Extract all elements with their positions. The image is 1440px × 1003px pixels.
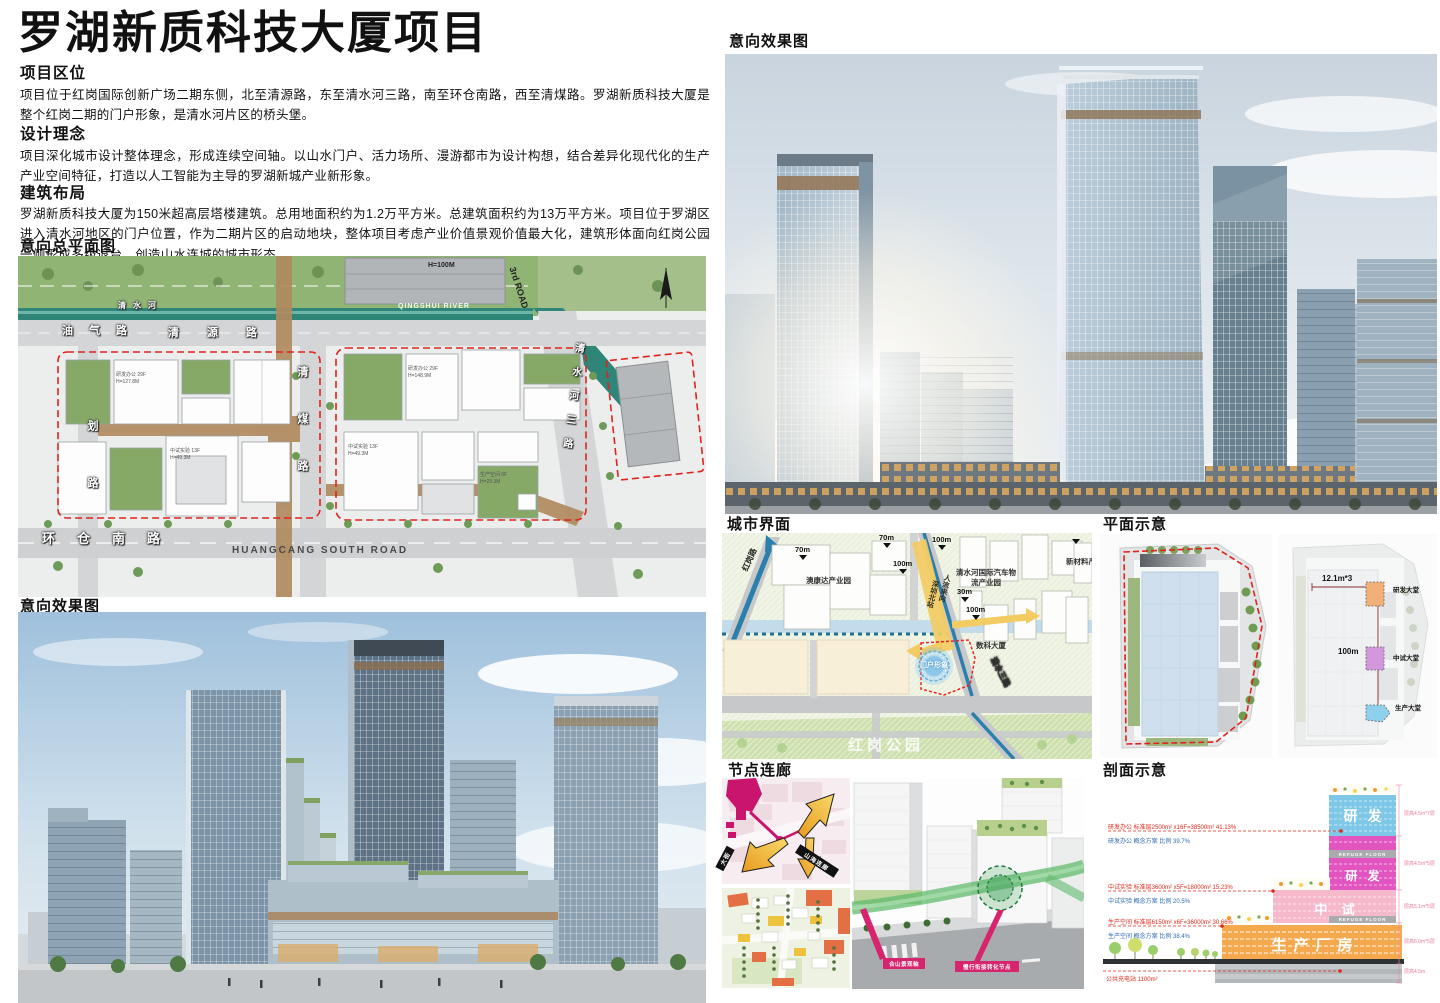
annotation-prod-ratio: 生产空间 概念方案 比例 38.4% [1108,931,1190,940]
floor-height-dim: 层高6.0m*5层 [1404,938,1435,945]
arrow-down-icon [972,615,980,620]
landscape-axis-tag: 合山景观轴 [883,958,925,969]
dim-marker-100m: 100m [966,606,985,620]
lot-label: 中试实验 13F H=49.3M [348,444,392,458]
page-title: 罗湖新质科技大厦项目 [18,10,488,55]
lobby-pilot-label: 中试大堂 [1393,656,1419,663]
plan-dim-width: 12.1m*3 [1322,575,1352,583]
shuke-tower-label: 数科大厦 [976,642,1006,650]
dim-marker-100m: 100m [893,560,912,574]
zone-rd-mid-label: 研发 [1329,867,1396,884]
node-corridor-context-plan [722,888,850,988]
road-qingyuan-label: 清源路 [168,328,285,339]
dim-marker-70m: 70m [879,534,894,548]
zone-production-label: 生产厂房 [1222,934,1402,955]
heading-master-plan: 意向总平面图 [20,239,116,254]
lobby-rd-label: 研发大堂 [1393,588,1419,595]
arrow-down-icon [899,569,907,574]
lot-label: 研发办公 29F H=148.9M [408,366,452,380]
zone-pilot-label: 中试 [1273,899,1396,918]
heading-city-interface: 城市界面 [727,517,791,532]
annotation-pilot-area: 中试实验 标准层3600m² x5F=18000m² 15.23% [1108,882,1233,891]
heading-massing: 建筑布局 [20,186,86,202]
road-guihua-label: 划路 [86,420,97,534]
dim-marker-30m: 30m [957,588,972,602]
dim-marker-70m: 70m [795,546,810,560]
heading-concept: 设计理念 [20,127,86,143]
lot-label: 研发办公 29F H=127.8M [116,372,160,386]
plan-dim-height: 100m [1338,648,1358,656]
arrow-down-icon [1072,538,1080,544]
lot-label: 生产空间 6F H=29.3M [480,472,524,486]
slow-traffic-node-tag: 慢行衔接转化节点 [955,961,1019,972]
arrow-down-icon [961,597,969,602]
building-h100-label: H=100M [428,262,455,269]
annotation-rd-ratio: 研发办公 概念方案 比例 39.7% [1108,836,1190,845]
annotation-rd-area: 研发办公 标准层2500m² x16F=38500m² 41.13% [1108,822,1236,831]
floor-height-dim: 层高4.5m*5层 [1404,860,1435,867]
heading-node-corridor: 节点连廊 [728,763,792,778]
dim-marker-text: 100m [893,559,912,568]
paragraph-location: 项目位于红岗国际创新广场二期东侧，北至清源路，东至清水河三路，南至环仓南路，西至… [20,85,710,126]
annotation-pilot-ratio: 中试实验 概念方案 比例 20.5% [1108,896,1190,905]
road-youqi-label: 油气路 [62,326,143,337]
river-label-en: QINGSHUI RIVER [398,303,470,310]
refuge-floor-label: REFUGE FLOOR [1329,852,1396,857]
heading-section-diagram: 剖面示意 [1103,763,1167,778]
dim-marker-text: 70m [795,545,810,554]
lobby-prod-label: 生产大堂 [1395,706,1421,713]
floor-height-dim: 层高5.1m*5层 [1404,903,1435,910]
dim-marker-text: 100m [966,605,985,614]
heading-location: 项目区位 [20,66,86,82]
arrow-down-icon [883,543,891,548]
dim-marker-text: 70m [879,533,894,542]
refuge-floor-label: REFUGE FLOOR [1329,917,1396,922]
render-right-image [725,54,1437,514]
dim-marker-text: 30m [957,587,972,596]
plan-diagram-left [1100,534,1272,758]
plan-diagram-right [1278,534,1437,758]
lot-label: 中试实验 13F H=49.3M [170,448,214,462]
heading-plan-diagram: 平面示意 [1103,517,1167,532]
heading-render-right: 意向效果图 [729,34,809,49]
road-qingmei-label: 清煤路 [296,366,307,507]
zone-rd-top-label: 研发 [1329,806,1396,826]
new-material-label: 新材料产业园 [1066,558,1092,566]
river-label-cn: 清水河 [118,302,163,310]
arrow-down-icon [799,555,807,560]
road-huancang-cn-label: 环仓南路 [42,532,182,545]
arrow-down-icon [938,545,946,550]
logistics-park-label: 清水河国际汽车物流产业园 [955,568,1017,588]
render-left-image [18,612,706,1003]
road-huancang-en-label: HUANGCANG SOUTH ROAD [232,546,408,556]
dim-marker-text: 100m [932,535,951,544]
park-label: 红岗公园 [848,738,924,753]
aokangda-label: 澳康达产业园 [806,577,851,585]
floor-height-dim: 层高4.5m [1404,968,1425,975]
presentation-board: 罗湖新质科技大厦项目 项目区位 项目位于红岗国际创新广场二期东侧，北至清源路，东… [0,0,1440,1003]
annotation-charging-station: 公共充电站 1100m² [1106,974,1158,983]
annotation-prod-area: 生产空间 标准层6150m² x6F=36000m² 30.66% [1108,917,1233,926]
gateway-label: 门户形象 [920,662,948,669]
dim-marker-100m: 100m [932,536,951,550]
paragraph-concept: 项目深化城市设计整体理念，形成连续空间轴。以山水门户、活力场所、漫游都市为设计构… [20,146,710,187]
floor-height-dim: 层高4.5m*7层 [1404,810,1435,817]
